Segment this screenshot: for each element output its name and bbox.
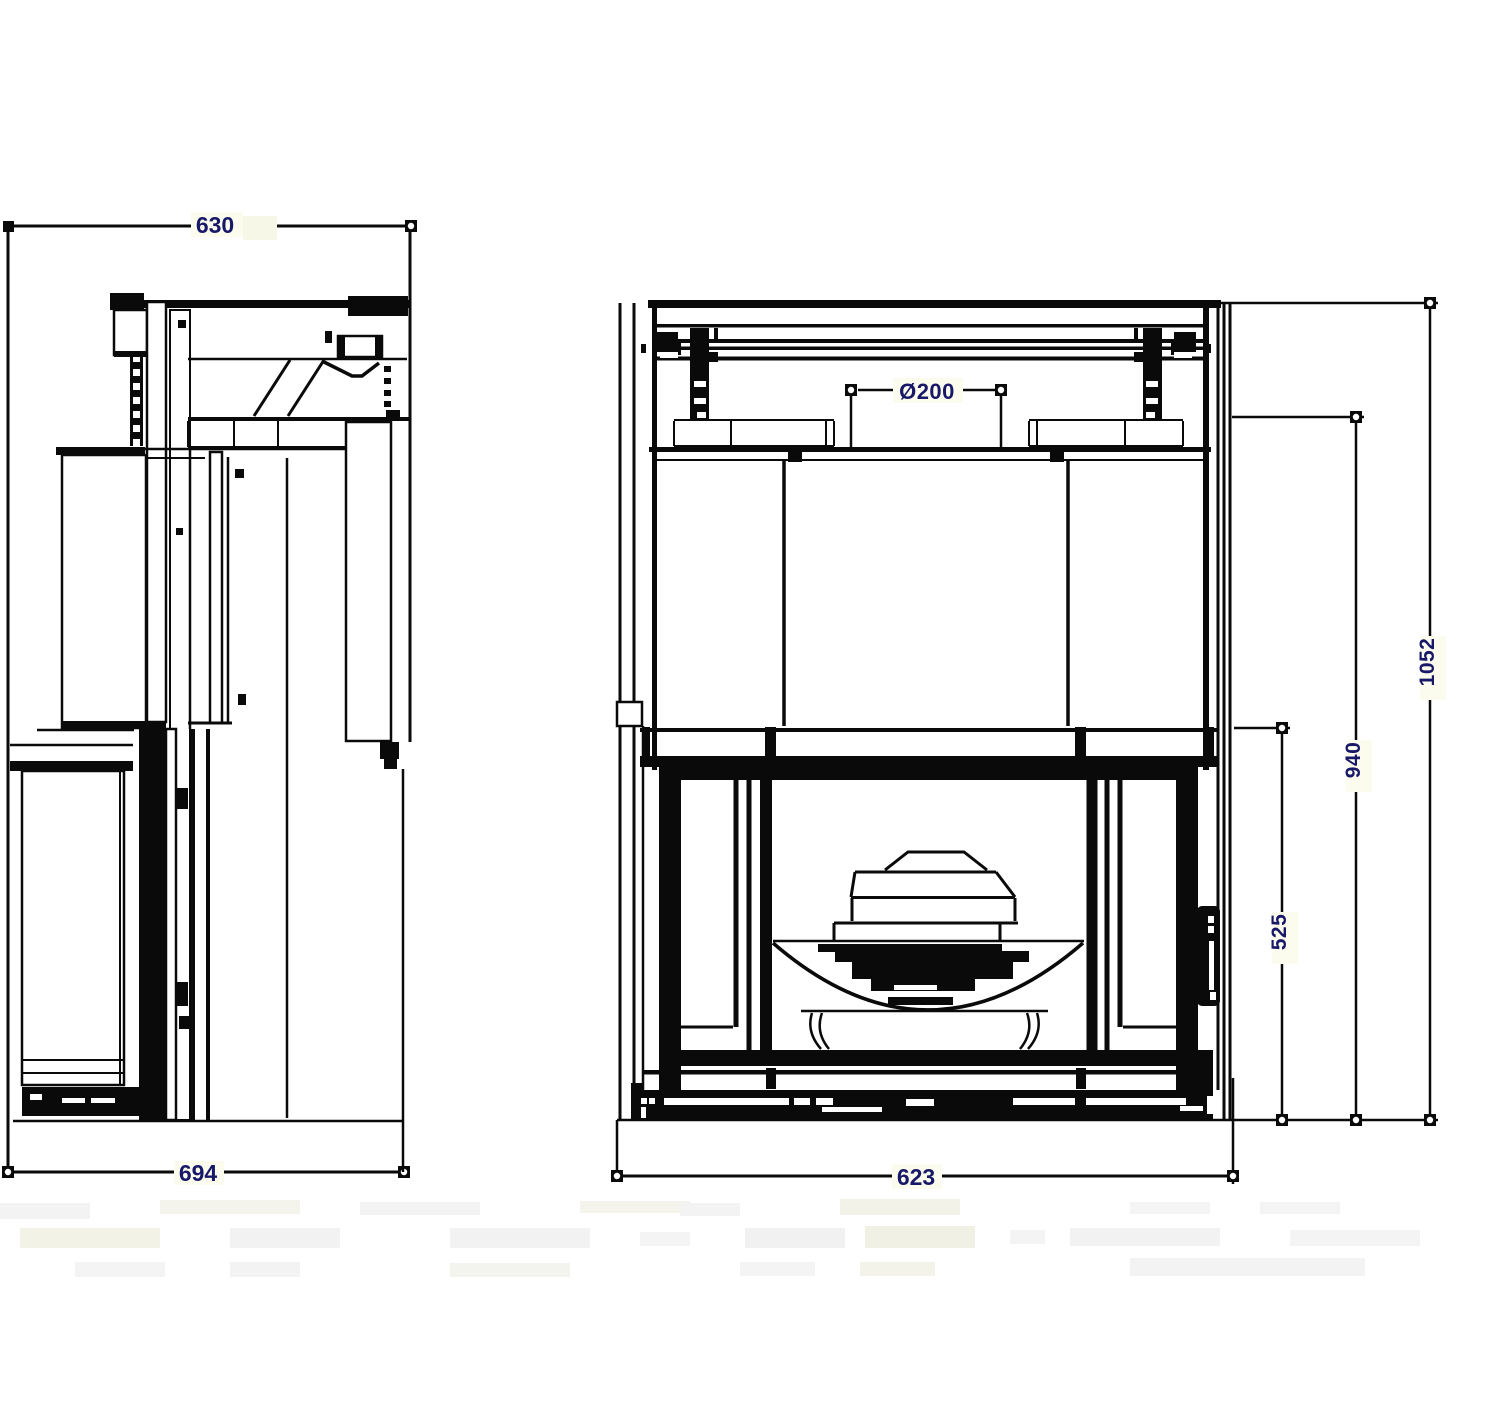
svg-text:Ø200: Ø200 — [899, 379, 955, 404]
svg-text:630: 630 — [196, 212, 234, 238]
svg-text:525: 525 — [1268, 914, 1291, 951]
svg-text:940: 940 — [1342, 742, 1365, 779]
svg-text:623: 623 — [897, 1164, 935, 1190]
svg-text:694: 694 — [179, 1160, 218, 1186]
svg-text:1052: 1052 — [1416, 638, 1439, 687]
